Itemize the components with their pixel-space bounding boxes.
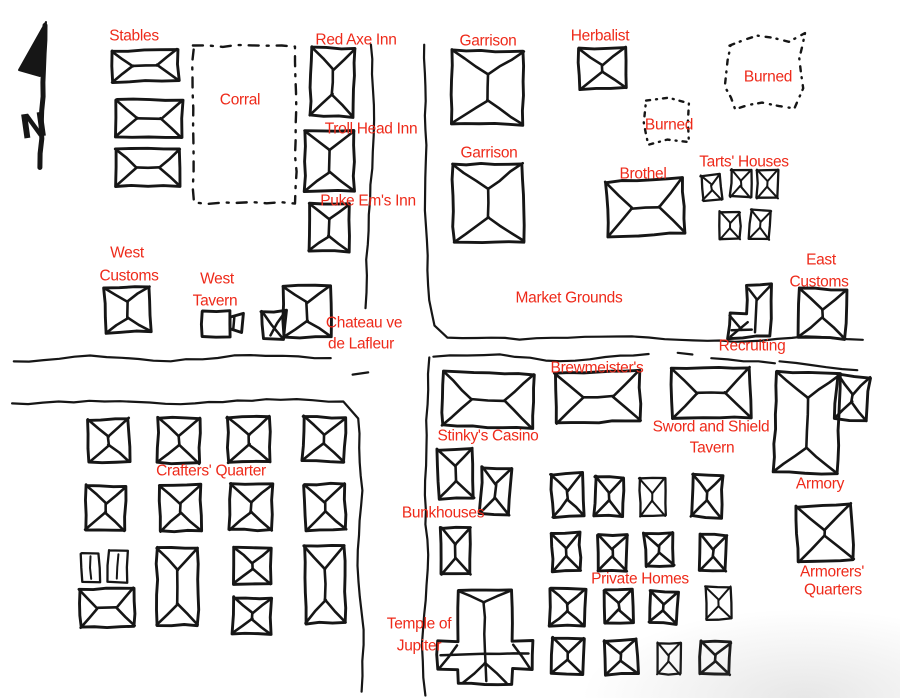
building-sword-shield-tavern-roofline xyxy=(725,367,750,393)
building-crafters-8-roofline xyxy=(324,484,345,502)
building-home-10-roofline xyxy=(604,590,619,603)
building-crafters-2-roofline xyxy=(179,436,180,445)
building-crafters-6-roofline xyxy=(180,503,181,512)
building-armory-wing-roofline xyxy=(850,402,868,421)
building-home-12-roofline xyxy=(706,606,719,619)
building-troll-head-inn xyxy=(304,131,354,192)
label-sword-shield-2: Tavern xyxy=(690,440,735,457)
building-crafters-wide xyxy=(79,587,135,628)
building-home-3-roofline xyxy=(640,500,653,516)
building-crafters-3-roofline xyxy=(249,416,270,434)
building-stable-1-roofline xyxy=(133,65,157,66)
label-burned-large: Burned xyxy=(744,69,792,86)
labels-layer: StablesCorralRed Axe InnTroll Head InnPu… xyxy=(99,28,864,655)
building-home-1-roofline xyxy=(567,491,568,500)
building-herbalist-roofline xyxy=(579,48,602,66)
building-brothel-roofline xyxy=(659,206,685,234)
building-sword-shield-tavern-roofline xyxy=(725,392,751,418)
building-temple-of-jupiter-roofline xyxy=(463,663,485,683)
building-temple-of-jupiter-roofline xyxy=(460,592,485,603)
road-east-bottom-4 xyxy=(780,361,858,370)
building-crafters-4-roofline xyxy=(323,444,344,462)
building-home-12-roofline xyxy=(719,606,732,618)
building-home-2 xyxy=(594,476,625,517)
building-home-9-roofline xyxy=(567,611,585,626)
building-tart-house-2-roofline xyxy=(741,181,742,187)
building-west-customs-roofline xyxy=(105,288,128,303)
building-stable-2-roofline xyxy=(115,118,137,138)
building-home-9 xyxy=(549,588,586,627)
building-crafters-8-roofline xyxy=(325,502,326,511)
label-armory: Armory xyxy=(796,476,845,493)
building-crafters-4 xyxy=(302,416,347,463)
building-stable-1 xyxy=(111,49,179,83)
building-stable-2-roofline xyxy=(137,118,161,119)
building-temple-of-jupiter-roofline xyxy=(485,590,512,602)
building-home-5 xyxy=(551,532,581,572)
building-crafters-longhouse-roofline xyxy=(157,604,178,625)
building-crafters-longhouse xyxy=(156,547,199,625)
building-crafters-1 xyxy=(87,418,130,463)
building-tart-house-1-roofline xyxy=(711,185,712,190)
building-home-15-roofline xyxy=(668,661,680,675)
building-herbalist-roofline xyxy=(603,71,626,88)
building-crafters-1-roofline xyxy=(108,444,129,463)
building-garrison-north-roofline xyxy=(487,74,488,101)
building-home-13-roofline xyxy=(567,660,583,674)
building-crafters-wide-roofline xyxy=(97,607,116,608)
building-crafters-8-roofline xyxy=(325,510,346,530)
building-stable-1-roofline xyxy=(112,66,134,83)
building-home-11-roofline xyxy=(664,592,678,605)
road-east-bottom-2 xyxy=(678,353,693,355)
building-home-6-roofline xyxy=(598,535,612,550)
building-west-customs-roofline xyxy=(127,287,150,302)
building-brewmeisters-roofline xyxy=(556,398,584,424)
building-crafters-wide-roofline xyxy=(117,607,135,626)
label-recruiting: Recruiting xyxy=(719,338,786,355)
building-temple-of-jupiter xyxy=(437,590,533,685)
building-stable-3-roofline xyxy=(116,149,137,167)
building-home-3-roofline xyxy=(639,479,652,494)
building-sword-shield-tavern-roofline xyxy=(672,393,698,419)
building-crafters-10-roofline xyxy=(252,598,271,614)
building-brothel xyxy=(605,177,686,237)
building-home-3 xyxy=(639,477,666,516)
building-stable-1-roofline xyxy=(156,49,177,65)
building-stable-3-roofline xyxy=(136,167,159,168)
building-recruiting-roofline xyxy=(732,330,752,331)
building-home-1-roofline xyxy=(550,474,567,492)
label-west-tavern-2: Tavern xyxy=(193,293,238,310)
building-herbalist xyxy=(578,46,628,89)
building-tart-house-4-roofline xyxy=(720,228,730,240)
building-brothel-roofline xyxy=(631,207,659,209)
building-home-8 xyxy=(699,534,727,572)
label-herbalist: Herbalist xyxy=(571,28,630,45)
building-crafters-8-roofline xyxy=(305,484,325,503)
building-stable-3-roofline xyxy=(160,149,180,167)
building-troll-head-inn-roofline xyxy=(329,150,330,172)
building-sword-shield-tavern-roofline xyxy=(697,392,725,393)
building-stable-2-roofline xyxy=(160,118,182,137)
building-home-14-roofline xyxy=(620,654,621,660)
building-chateau-roofline xyxy=(283,286,307,302)
building-crafters-wide-roofline xyxy=(80,609,98,628)
building-home-14 xyxy=(604,639,639,676)
building-home-9-roofline xyxy=(549,611,567,626)
building-west-tavern xyxy=(201,311,230,338)
building-home-11-roofline xyxy=(663,611,677,624)
label-chateau-1: Chateau ve xyxy=(326,315,402,332)
building-temple-of-jupiter-roofline xyxy=(440,645,457,668)
building-recruiting-roofline xyxy=(749,289,757,300)
road-north-left xyxy=(366,45,375,309)
building-crafters-7-roofline xyxy=(230,484,251,503)
building-crafters-7-roofline xyxy=(251,484,272,502)
building-crafters-2-roofline xyxy=(157,445,179,463)
building-home-10-roofline xyxy=(619,603,620,610)
building-stinkys-casino-roofline xyxy=(503,400,532,428)
building-east-customs-roofline xyxy=(822,289,846,311)
building-brewmeisters-roofline xyxy=(583,396,613,398)
building-brewmeisters xyxy=(554,370,641,424)
label-corral: Corral xyxy=(220,92,260,109)
building-crafters-wide-roofline xyxy=(79,589,97,609)
building-home-5-roofline xyxy=(552,556,567,572)
label-armorers-quarters-2: Quarters xyxy=(804,582,862,599)
building-crafters-9-roofline xyxy=(252,569,270,584)
label-west-tavern-1: West xyxy=(200,271,235,288)
building-home-8-roofline xyxy=(701,535,714,550)
building-tart-house-1 xyxy=(700,174,722,201)
building-stable-1-roofline xyxy=(157,64,178,81)
building-bunkhouse-3-roofline xyxy=(442,558,456,574)
road-east-bottom-3 xyxy=(711,358,775,363)
building-home-11 xyxy=(648,591,678,625)
buildings-layer xyxy=(79,46,871,684)
building-brewmeisters-roofline xyxy=(613,396,641,422)
building-home-13-roofline xyxy=(568,638,584,654)
corral-fence xyxy=(192,45,296,204)
building-home-15 xyxy=(657,642,681,675)
label-temple-2: Jupiter xyxy=(397,638,442,655)
building-crafters-wide-roofline xyxy=(116,588,134,608)
building-west-tavern-annex xyxy=(230,313,243,332)
building-crafters-tall-roofline xyxy=(325,599,346,623)
building-stinkys-casino-roofline xyxy=(505,373,534,401)
building-crafters-10-roofline xyxy=(232,618,252,634)
building-crafters-4-roofline xyxy=(303,416,325,435)
building-crafters-2-roofline xyxy=(179,418,200,436)
building-stable-2 xyxy=(115,99,183,138)
building-home-8-roofline xyxy=(713,549,714,557)
building-stinkys-casino-roofline xyxy=(443,372,473,400)
building-puke-ems-inn-roofline xyxy=(328,236,349,251)
label-east-customs-2: Customs xyxy=(789,274,849,291)
label-west-customs-2: Customs xyxy=(99,268,159,285)
building-armory-main-roofline xyxy=(773,447,805,472)
building-crafters-tall-roofline xyxy=(324,569,325,600)
building-home-1-roofline xyxy=(567,474,582,491)
building-garrison-south xyxy=(452,163,525,244)
label-tarts-houses: Tarts' Houses xyxy=(699,154,789,171)
building-home-4-roofline xyxy=(707,492,708,500)
building-puke-ems-inn-roofline xyxy=(309,236,330,251)
building-crafters-7 xyxy=(229,483,273,531)
building-bunkhouse-1-roofline xyxy=(439,481,457,498)
building-stable-2-roofline xyxy=(161,100,182,119)
building-crafters-3-roofline xyxy=(228,444,250,463)
building-home-2-roofline xyxy=(609,493,610,501)
building-tart-house-2-roofline xyxy=(741,169,752,181)
building-troll-head-inn-roofline xyxy=(330,172,354,191)
building-home-5-roofline xyxy=(566,533,580,549)
building-red-axe-inn-roofline xyxy=(332,70,333,94)
building-home-16-roofline xyxy=(715,655,716,661)
building-home-5-roofline xyxy=(551,533,566,548)
building-armorers-quarters-roofline xyxy=(823,503,852,530)
building-sword-shield-tavern xyxy=(671,367,751,419)
building-east-customs-roofline xyxy=(799,288,823,309)
building-crafters-5-roofline xyxy=(86,486,106,503)
building-home-13-roofline xyxy=(551,659,567,674)
building-troll-head-inn-roofline xyxy=(305,172,330,191)
building-crafters-3-roofline xyxy=(249,444,270,462)
label-market-grounds: Market Grounds xyxy=(516,290,623,307)
building-east-customs-roofline xyxy=(822,309,823,317)
building-garrison-north-roofline xyxy=(487,100,523,124)
building-home-6 xyxy=(597,534,628,571)
label-east-customs-1: East xyxy=(806,252,837,269)
building-tart-house-4 xyxy=(719,211,740,239)
building-stable-1-roofline xyxy=(112,51,133,67)
building-home-15-roofline xyxy=(668,656,669,662)
building-home-5-roofline xyxy=(566,556,580,571)
building-chateau xyxy=(282,285,332,338)
label-garrison-south: Garrison xyxy=(460,145,517,162)
building-home-10-roofline xyxy=(605,609,619,623)
building-home-12-roofline xyxy=(718,586,730,600)
building-home-6-roofline xyxy=(612,535,627,549)
building-armorers-quarters-roofline xyxy=(798,535,826,562)
building-armory-main-roofline xyxy=(776,372,809,398)
building-home-12-roofline xyxy=(706,587,719,600)
label-stables: Stables xyxy=(109,28,159,45)
building-crafters-3-roofline xyxy=(227,417,249,436)
building-crafters-4-roofline xyxy=(324,418,345,436)
building-crafters-10 xyxy=(232,597,272,636)
building-crafters-longhouse-roofline xyxy=(177,603,198,624)
roads-layer xyxy=(12,45,863,696)
building-crafters-5-roofline xyxy=(105,504,106,512)
building-crafters-3 xyxy=(227,416,271,463)
building-crafters-tall-roofline xyxy=(304,546,325,570)
label-burned-small: Burned xyxy=(645,117,693,134)
building-home-16 xyxy=(699,641,731,675)
building-garrison-north-roofline xyxy=(452,50,487,74)
label-private-homes: Private Homes xyxy=(591,571,689,588)
building-bunkhouse-3-roofline xyxy=(442,528,456,545)
building-recruiting-roofline xyxy=(757,287,770,300)
hand-drawn-town-map: N StablesCorralRed Axe InnTroll Head Inn… xyxy=(0,0,900,698)
building-armory-wing-roofline xyxy=(834,400,852,420)
building-home-16-roofline xyxy=(700,641,715,655)
compass-north-arrow: N xyxy=(17,22,50,168)
building-crafters-shed-2 xyxy=(107,550,128,583)
building-armory-main-roofline xyxy=(806,448,839,474)
building-brothel-roofline xyxy=(605,181,632,209)
compass-letter: N xyxy=(17,104,50,146)
building-crafters-6-roofline xyxy=(181,512,202,531)
building-crafters-5 xyxy=(84,485,126,532)
road-accent-mark xyxy=(353,372,369,374)
building-crafters-9 xyxy=(233,547,272,585)
building-bunkhouse-3-roofline xyxy=(455,558,470,575)
building-tart-house-2 xyxy=(730,169,753,198)
building-brewmeisters-roofline xyxy=(555,373,583,398)
label-sword-shield-1: Sword and Shield xyxy=(653,419,770,436)
building-stable-3 xyxy=(115,148,180,186)
building-crafters-8 xyxy=(304,483,347,531)
label-stinkys-casino: Stinky's Casino xyxy=(438,428,539,445)
building-home-10-roofline xyxy=(618,589,632,603)
label-chateau-2: de Lafleur xyxy=(328,336,394,353)
building-home-12 xyxy=(705,586,731,620)
building-tart-house-5-roofline xyxy=(750,210,761,222)
building-crafters-2-roofline xyxy=(158,417,180,436)
building-garrison-south-roofline xyxy=(488,163,523,189)
label-temple-1: Temple of xyxy=(387,616,452,633)
building-armorers-quarters xyxy=(795,503,854,563)
building-home-3-roofline xyxy=(652,478,665,493)
label-west-customs-1: West xyxy=(110,245,145,262)
building-crafters-9-roofline xyxy=(252,563,253,570)
building-tart-house-3 xyxy=(756,170,778,199)
building-crafters-6 xyxy=(159,484,202,532)
building-west-customs xyxy=(104,286,152,333)
building-armory-main xyxy=(773,371,841,474)
building-home-1-roofline xyxy=(567,499,583,516)
building-home-7 xyxy=(643,532,674,568)
building-garrison-south-roofline xyxy=(454,217,489,242)
building-crafters-tall-roofline xyxy=(305,600,326,623)
building-crafters-tall xyxy=(304,545,346,624)
building-crafters-longhouse-roofline xyxy=(178,548,198,570)
building-armory-wing-roofline xyxy=(851,394,852,401)
building-crafters-tall-roofline xyxy=(325,546,345,569)
building-chateau-roofline xyxy=(307,286,330,303)
building-herbalist-roofline xyxy=(580,71,604,89)
fences-and-ruins-layer xyxy=(192,33,805,204)
building-crafters-5-roofline xyxy=(104,512,125,530)
building-bunkhouse-2-roofline xyxy=(495,484,497,497)
building-home-9-roofline xyxy=(568,589,585,604)
label-bunkhouses: Bunkhouses xyxy=(402,505,485,522)
building-west-tavern-annex-roofline xyxy=(233,316,234,330)
building-home-14-roofline xyxy=(605,660,621,674)
building-red-axe-inn-roofline xyxy=(310,93,333,116)
building-crafters-2 xyxy=(157,417,201,464)
building-armorers-quarters-roofline xyxy=(796,505,824,531)
building-red-axe-inn-roofline xyxy=(333,48,355,71)
building-home-7-roofline xyxy=(659,546,660,553)
building-garrison-south-roofline xyxy=(453,164,488,189)
building-stable-3-roofline xyxy=(116,168,137,186)
building-armorers-quarters-roofline xyxy=(825,534,854,560)
building-crafters-7-roofline xyxy=(250,511,272,530)
building-armory-main-roofline xyxy=(806,398,808,448)
building-crafters-8-roofline xyxy=(305,512,325,531)
building-home-4-roofline xyxy=(706,500,722,518)
building-crafters-5-roofline xyxy=(106,486,126,504)
building-crafters-6-roofline xyxy=(180,485,201,503)
building-tart-house-3-roofline xyxy=(767,170,778,182)
building-garrison-south-roofline xyxy=(487,188,488,216)
building-tart-house-5 xyxy=(749,209,772,240)
label-garrison-north: Garrison xyxy=(459,33,516,50)
building-brothel-roofline xyxy=(607,208,634,236)
building-crafters-4-roofline xyxy=(302,442,324,461)
building-home-9-roofline xyxy=(551,589,569,604)
building-crafters-9-roofline xyxy=(233,569,252,584)
building-bunkhouse-1 xyxy=(437,448,474,500)
building-home-4-roofline xyxy=(692,475,708,493)
building-home-13 xyxy=(551,637,585,675)
label-troll-head-inn: Troll Head Inn xyxy=(325,121,418,138)
building-east-customs xyxy=(797,288,847,340)
building-tart-house-5-roofline xyxy=(749,227,760,240)
building-temple-of-jupiter-roofline xyxy=(485,663,507,683)
building-stable-2-roofline xyxy=(116,100,138,119)
building-home-3-roofline xyxy=(652,501,665,517)
building-home-4 xyxy=(690,474,723,518)
building-temple-of-jupiter-roofline xyxy=(513,645,529,668)
building-east-customs-roofline xyxy=(798,316,823,338)
building-garrison-north xyxy=(451,50,525,126)
road-west-top xyxy=(14,355,331,362)
building-home-10 xyxy=(604,589,634,624)
building-home-9-roofline xyxy=(567,603,568,611)
label-crafters-quarter: Crafters' Quarter xyxy=(156,463,266,480)
building-crafters-1-roofline xyxy=(108,437,109,445)
building-temple-of-jupiter-roofline xyxy=(484,602,487,681)
building-crafters-7-roofline xyxy=(251,502,252,511)
building-crafters-9-roofline xyxy=(234,548,253,564)
building-crafters-6-roofline xyxy=(160,486,181,505)
building-garrison-south-roofline xyxy=(488,217,524,242)
label-armorers-quarters-1: Armorers' xyxy=(800,564,864,581)
building-west-customs-roofline xyxy=(127,301,128,317)
label-brewmeisters: Brewmeister's xyxy=(551,360,644,377)
building-crafters-shed-1-roofline xyxy=(90,556,92,579)
building-home-6-roofline xyxy=(598,556,612,571)
building-garrison-north-roofline xyxy=(488,51,524,75)
building-east-customs-roofline xyxy=(822,318,846,339)
label-brothel: Brothel xyxy=(619,166,666,183)
building-west-tavern-outline xyxy=(201,311,230,338)
building-home-2-roofline xyxy=(610,478,624,494)
building-stable-3-roofline xyxy=(160,168,180,186)
building-crafters-1-roofline xyxy=(89,445,110,462)
building-crafters-9-roofline xyxy=(252,548,271,563)
building-bunkhouse-1-roofline xyxy=(437,449,455,466)
town-map-canvas: N StablesCorralRed Axe InnTroll Head Inn… xyxy=(0,0,900,698)
building-armorers-quarters-roofline xyxy=(824,531,825,536)
building-crafters-2-roofline xyxy=(179,445,200,464)
building-sword-shield-tavern-roofline xyxy=(672,368,698,394)
building-crafters-5-roofline xyxy=(85,511,106,530)
